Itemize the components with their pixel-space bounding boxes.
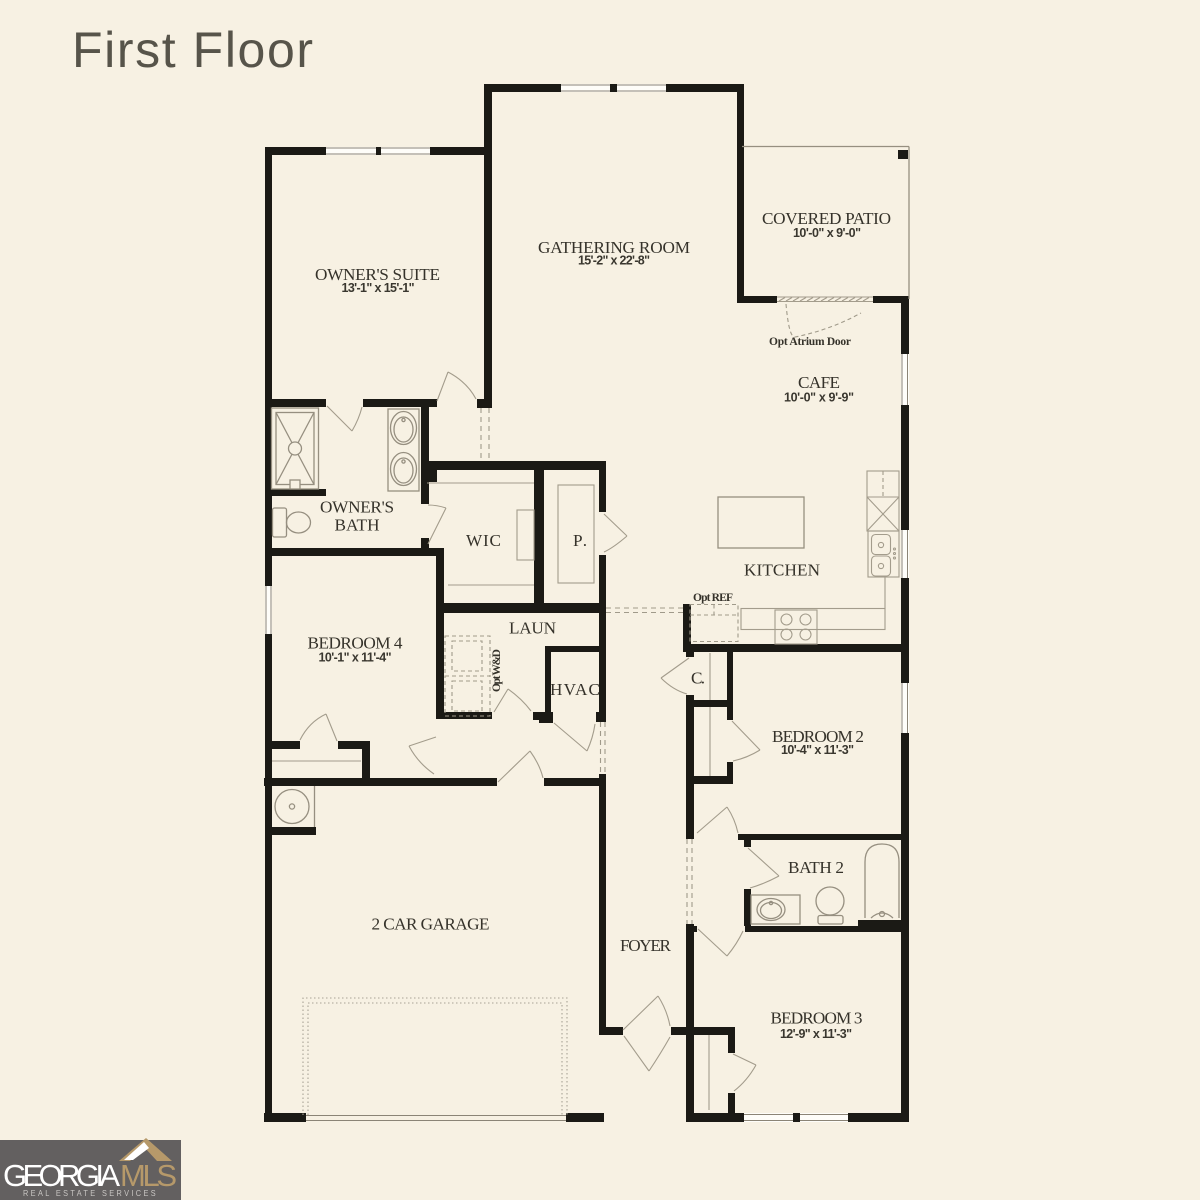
- svg-text:13'-1" x 15'-1": 13'-1" x 15'-1": [342, 281, 415, 295]
- svg-text:10'-4" x 11'-3": 10'-4" x 11'-3": [781, 743, 854, 757]
- svg-text:First Floor: First Floor: [72, 22, 315, 78]
- svg-text:10'-1" x 11'-4": 10'-1" x 11'-4": [319, 651, 392, 665]
- svg-text:MLS: MLS: [120, 1158, 177, 1193]
- svg-text:BEDROOM 3: BEDROOM 3: [771, 1009, 863, 1028]
- svg-text:LAUN: LAUN: [509, 619, 557, 638]
- svg-text:C.: C.: [691, 669, 705, 688]
- svg-text:BATH 2: BATH 2: [788, 858, 844, 877]
- svg-text:HVAC: HVAC: [550, 680, 600, 699]
- svg-text:2 CAR GARAGE: 2 CAR GARAGE: [372, 915, 490, 934]
- svg-text:OWNER'S: OWNER'S: [320, 498, 394, 517]
- svg-text:10'-0" x 9'-9": 10'-0" x 9'-9": [784, 391, 854, 405]
- svg-text:BATH: BATH: [335, 516, 380, 535]
- svg-text:REAL ESTATE SERVICES: REAL ESTATE SERVICES: [23, 1189, 158, 1198]
- svg-text:12'-9" x 11'-3": 12'-9" x 11'-3": [780, 1027, 852, 1041]
- svg-text:Opt Atrium Door: Opt Atrium Door: [769, 336, 851, 348]
- svg-text:Opt REF: Opt REF: [693, 592, 733, 604]
- svg-text:KITCHEN: KITCHEN: [744, 561, 821, 580]
- svg-text:10'-0" x 9'-0": 10'-0" x 9'-0": [793, 226, 861, 240]
- svg-text:FOYER: FOYER: [620, 936, 672, 955]
- svg-text:GEORGIA: GEORGIA: [3, 1158, 120, 1193]
- svg-text:Opt W&D: Opt W&D: [491, 649, 503, 692]
- svg-text:P.: P.: [573, 531, 587, 550]
- svg-text:15'-2" x 22'-8": 15'-2" x 22'-8": [578, 254, 650, 268]
- svg-text:WIC: WIC: [466, 531, 501, 550]
- svg-text:CAFE: CAFE: [798, 373, 840, 392]
